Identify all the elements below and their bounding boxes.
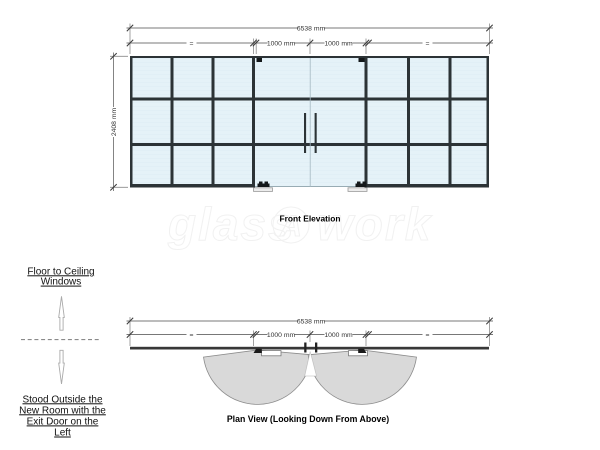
svg-text:2408 mm: 2408 mm — [111, 108, 118, 137]
svg-text:6538 mm: 6538 mm — [297, 318, 326, 325]
svg-text:=: = — [190, 40, 194, 47]
svg-text:New Room with the: New Room with the — [19, 405, 106, 416]
svg-text:Plan View (Looking Down From A: Plan View (Looking Down From Above) — [227, 414, 389, 424]
svg-text:6538 mm: 6538 mm — [297, 25, 326, 32]
svg-text:glass: glass — [167, 198, 296, 250]
svg-text:work: work — [317, 198, 433, 250]
svg-text:1000 mm: 1000 mm — [267, 332, 296, 339]
svg-text:Windows: Windows — [41, 277, 82, 288]
svg-text:1000 mm: 1000 mm — [267, 40, 296, 47]
svg-text:1000 mm: 1000 mm — [324, 40, 353, 47]
svg-text:Stood Outside the: Stood Outside the — [22, 394, 102, 405]
svg-text:Left: Left — [54, 428, 71, 439]
svg-text:Exit Door on the: Exit Door on the — [27, 416, 99, 427]
svg-text:=: = — [190, 332, 194, 339]
svg-text:Front Elevation: Front Elevation — [280, 214, 341, 224]
svg-text:=: = — [426, 40, 430, 47]
svg-text:1000 mm: 1000 mm — [324, 332, 353, 339]
svg-text:=: = — [426, 332, 430, 339]
